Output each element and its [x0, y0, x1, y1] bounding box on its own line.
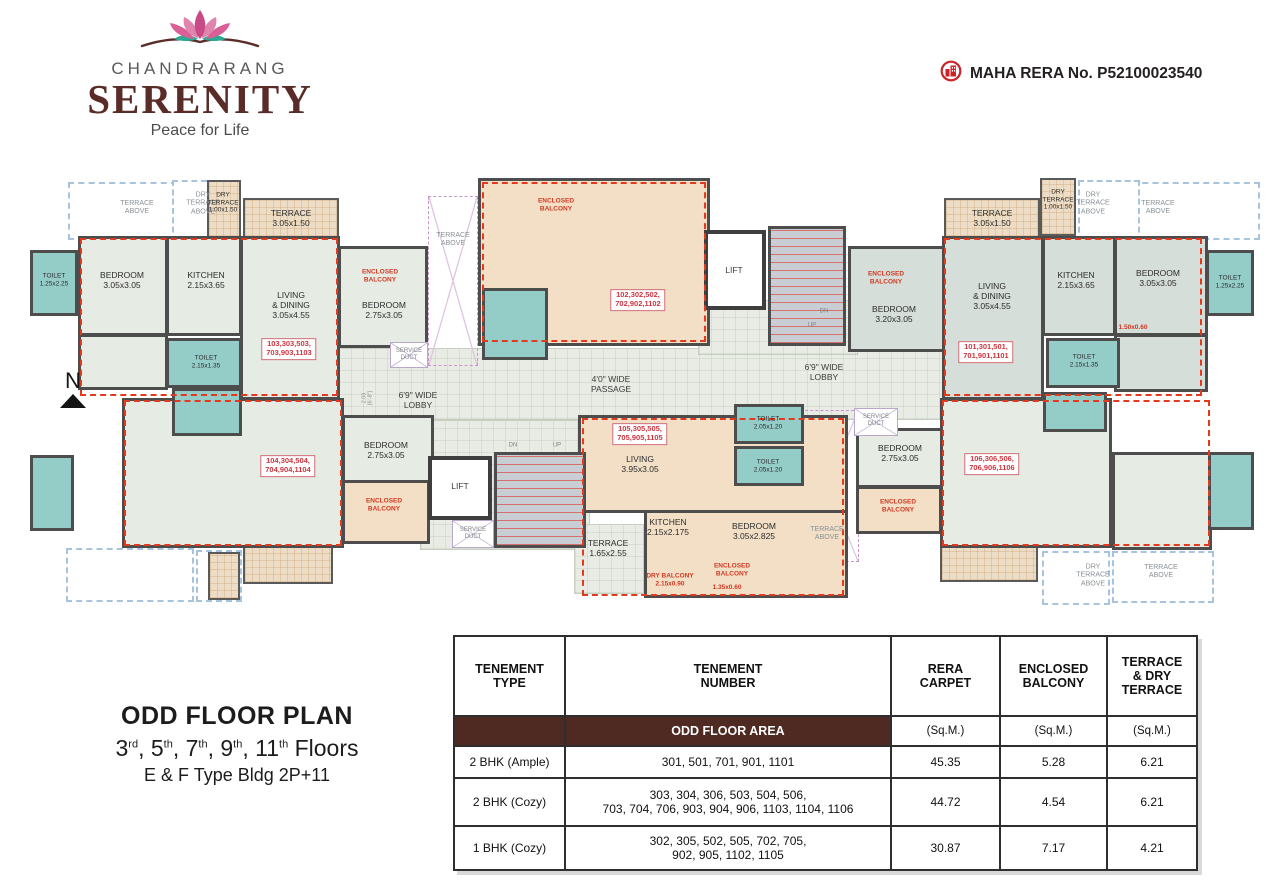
unit-boundary-106	[942, 400, 1210, 546]
column-header: TENEMENT NUMBER	[565, 636, 891, 716]
band-label: ODD FLOOR AREA	[565, 716, 891, 746]
terrace-above-center-left	[428, 196, 478, 366]
unit-label: (Sq.M.)	[891, 716, 1000, 746]
unit-boundary-101	[944, 238, 1202, 396]
terrace-value: 6.21	[1107, 778, 1197, 826]
column-header: RERA CARPET	[891, 636, 1000, 716]
unit-boundary-102	[482, 182, 706, 342]
tenement-numbers: 301, 501, 701, 901, 1101	[565, 746, 891, 778]
plan-title: ODD FLOOR PLAN	[92, 702, 382, 731]
bedroom2-101	[848, 246, 950, 352]
building-type: E & F Type Bldg 2P+11	[92, 765, 382, 786]
floor-number: 9th	[220, 735, 242, 761]
rera-carpet-value: 30.87	[891, 826, 1000, 870]
brochure-page: CHANDRARANG SERENITY Peace for Life MAHA…	[0, 0, 1280, 891]
terrace-above-bottom-right	[1112, 551, 1214, 603]
unit-label: (Sq.M.)	[1000, 716, 1107, 746]
terrace-103	[243, 198, 339, 238]
service-duct-2	[452, 520, 494, 548]
unit-boundary-105	[582, 418, 844, 596]
column-header: TENEMENT TYPE	[454, 636, 565, 716]
column-header: TERRACE & DRY TERRACE	[1107, 636, 1197, 716]
floor-number: 7th	[186, 735, 208, 761]
bedroom2-106	[856, 428, 944, 488]
bedroom2-103	[338, 246, 428, 348]
band-spacer	[454, 716, 565, 746]
tenement-type: 2 BHK (Ample)	[454, 746, 565, 778]
enclosed-balcony-value: 5.28	[1000, 746, 1107, 778]
tenement-type: 1 BHK (Cozy)	[454, 826, 565, 870]
floor-number: 3rd	[115, 735, 138, 761]
north-arrow-icon	[60, 394, 86, 408]
toilet-104-b	[30, 455, 74, 531]
unit-boundary-104	[124, 400, 342, 546]
bedroom2-104	[342, 415, 434, 483]
dry-terrace-right	[1040, 178, 1076, 236]
tenement-numbers: 302, 305, 502, 505, 702, 705, 902, 905, …	[565, 826, 891, 870]
enclosed-balcony-value: 7.17	[1000, 826, 1107, 870]
table-row: 1 BHK (Cozy)302, 305, 502, 505, 702, 705…	[454, 826, 1197, 870]
rera-carpet-value: 44.72	[891, 778, 1000, 826]
toilet-106-b	[1208, 452, 1254, 530]
area-table: TENEMENT TYPETENEMENT NUMBERRERA CARPETE…	[453, 635, 1198, 871]
area-table-head: TENEMENT TYPETENEMENT NUMBERRERA CARPETE…	[454, 636, 1197, 746]
terrace-101	[944, 198, 1040, 238]
tenement-type: 2 BHK (Cozy)	[454, 778, 565, 826]
unit-label: (Sq.M.)	[1107, 716, 1197, 746]
floor-number: 11th	[255, 735, 288, 761]
terrace-104-strip	[208, 552, 240, 600]
toilet-103-a	[30, 250, 78, 316]
table-row: 2 BHK (Ample)301, 501, 701, 901, 110145.…	[454, 746, 1197, 778]
north-label: N	[56, 370, 90, 392]
terrace-value: 4.21	[1107, 826, 1197, 870]
dry-terrace-above-bottom-right	[1042, 551, 1110, 605]
table-row: 2 BHK (Cozy)303, 304, 306, 503, 504, 506…	[454, 778, 1197, 826]
service-duct-3	[854, 408, 898, 436]
dry-terrace-above-right	[1078, 180, 1140, 242]
staircase-2	[494, 452, 586, 548]
tenement-numbers: 303, 304, 306, 503, 504, 506, 703, 704, …	[565, 778, 891, 826]
terrace-below-left-1	[66, 548, 194, 602]
toilet-101-a	[1206, 250, 1254, 316]
dry-terrace-left	[207, 180, 241, 238]
staircase-1	[768, 226, 846, 346]
enclosed-balcony-value: 4.54	[1000, 778, 1107, 826]
service-duct-1	[390, 342, 428, 368]
lift-2	[428, 456, 492, 520]
floor-number: 5th	[151, 735, 173, 761]
lift-1	[704, 230, 766, 310]
floors-line: 3rd, 5th, 7th, 9th, 11th Floors	[92, 735, 382, 762]
plan-info: ODD FLOOR PLAN 3rd, 5th, 7th, 9th, 11th …	[92, 702, 382, 786]
enclosed-balcony-106	[856, 486, 942, 534]
terrace-above-right-1	[1122, 182, 1260, 240]
rera-carpet-value: 45.35	[891, 746, 1000, 778]
unit-boundary-103	[80, 238, 338, 396]
enclosed-balcony-104	[342, 480, 430, 544]
north-indicator: N	[56, 370, 90, 408]
terrace-value: 6.21	[1107, 746, 1197, 778]
column-header: ENCLOSED BALCONY	[1000, 636, 1107, 716]
